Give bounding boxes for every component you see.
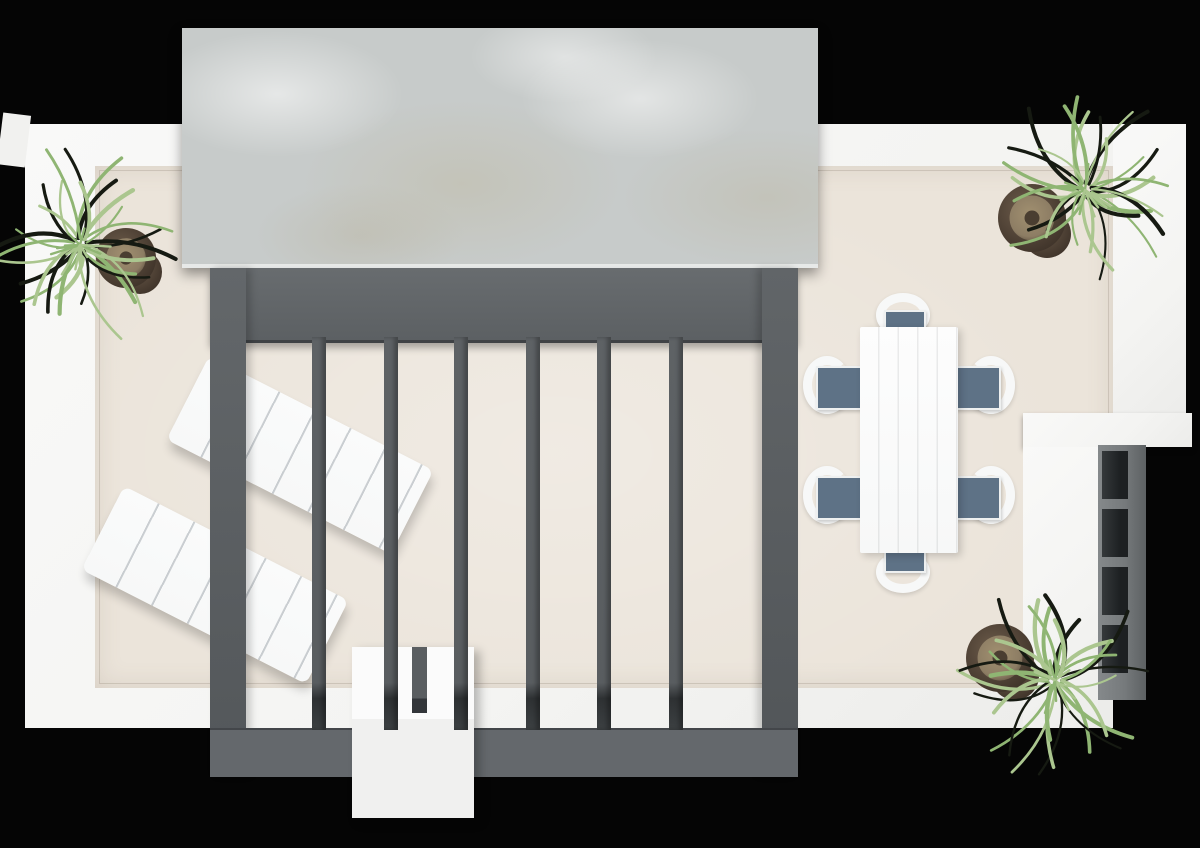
terrace-floor-plan	[0, 0, 1200, 848]
pergola-left-frame	[210, 268, 246, 775]
pergola-slat	[384, 337, 398, 730]
pergola-slat	[312, 337, 326, 730]
pergola-slat	[669, 337, 683, 730]
dining-chair-cushion	[816, 476, 862, 520]
dining-chair-cushion	[955, 476, 1001, 520]
shelf-niche	[1102, 509, 1128, 557]
shelf-niche	[1102, 451, 1128, 499]
pergola-right-frame	[762, 268, 798, 775]
terrace-right-wall-step	[1023, 413, 1192, 447]
plant-pot	[1025, 211, 1040, 226]
plant-leaf	[80, 245, 111, 247]
marble-canopy-slab	[182, 28, 818, 268]
potted-plant	[0, 135, 190, 355]
potted-plant	[975, 80, 1195, 300]
pergola-bottom-beam	[210, 728, 798, 777]
dining-chair-cushion	[816, 366, 862, 410]
dining-chair-cushion	[955, 366, 1001, 410]
plant-foliage	[958, 595, 1148, 774]
pergola-slat-over-bench	[412, 647, 427, 713]
pergola-slat	[454, 337, 468, 730]
dining-table	[860, 327, 958, 553]
potted-plant	[945, 570, 1165, 790]
pergola-top-beam	[210, 268, 798, 343]
plant-foliage	[1004, 97, 1168, 279]
plant-leaf	[1055, 680, 1056, 701]
pergola-slat	[597, 337, 611, 730]
pergola-slat	[526, 337, 540, 730]
